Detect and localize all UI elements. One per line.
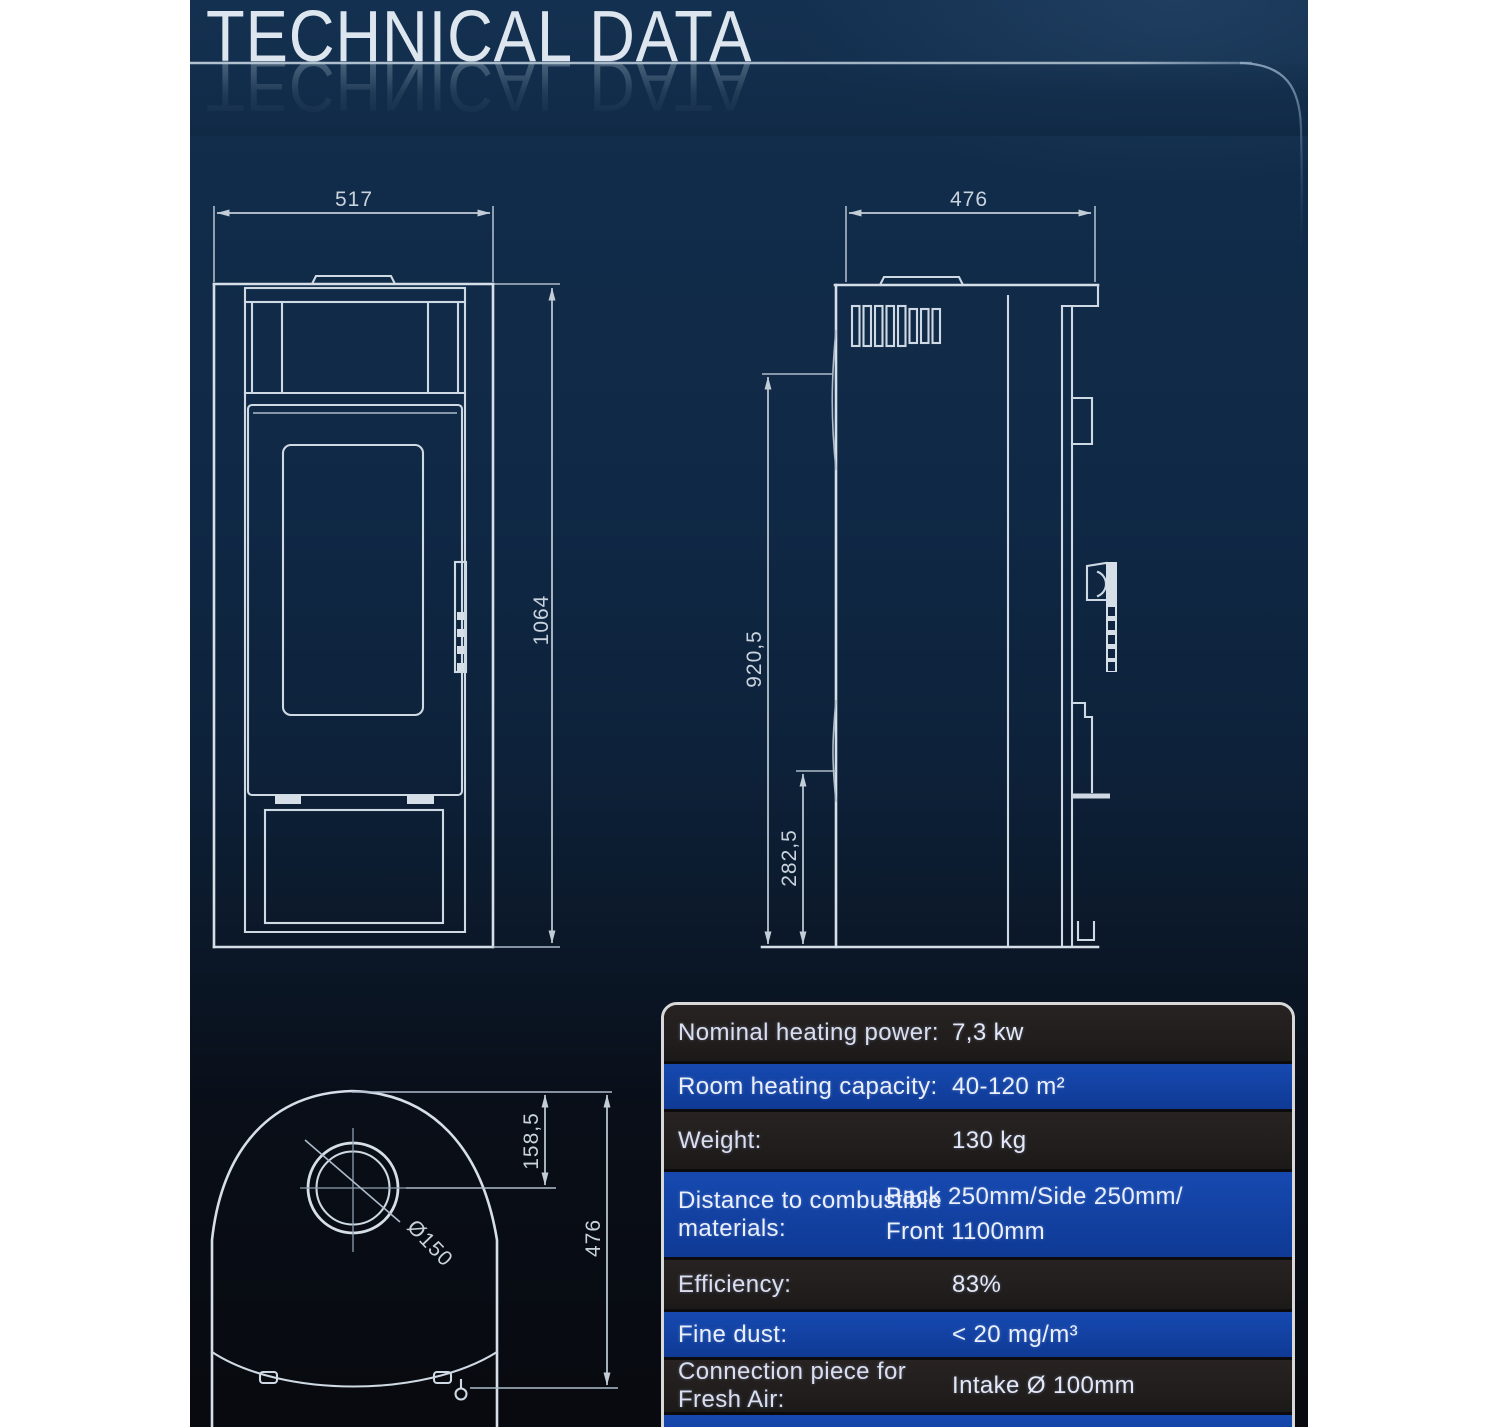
spec-value: 83% xyxy=(952,1271,1292,1299)
header-underline-swoosh xyxy=(190,63,1302,246)
spec-label: Room heating capacity: xyxy=(664,1073,952,1101)
top-view-drawing: Ø150 158,5 476 xyxy=(212,1091,618,1427)
spec-value: Intake Ø 100mm xyxy=(952,1372,1292,1400)
spec-label: Connection piece for Fresh Air: xyxy=(664,1358,952,1414)
table-row: Distance to combustible materials: Back … xyxy=(664,1169,1292,1257)
front-width-dim-label: 517 xyxy=(335,188,373,211)
spec-value: 40-120 m² xyxy=(952,1073,1292,1101)
spec-value: 130 kg xyxy=(952,1127,1292,1155)
datasheet: TECHNICAL DATA TECHNICAL DATA xyxy=(190,0,1308,1427)
top-depth-dim-label: 476 xyxy=(582,1219,605,1257)
table-row: Room heating capacity: 40-120 m² xyxy=(664,1061,1292,1109)
side-depth-dim-label: 476 xyxy=(950,188,988,211)
table-row: Nominal heating power: 7,3 kw xyxy=(664,1005,1292,1061)
flue-offset-dim-label: 158,5 xyxy=(520,1112,543,1170)
table-row xyxy=(664,1412,1292,1427)
front-height-dim-label: 1064 xyxy=(530,595,553,646)
front-view-drawing: 517 xyxy=(214,188,560,947)
table-row: Connection piece for Fresh Air: Intake Ø… xyxy=(664,1357,1292,1412)
table-row: Efficiency: 83% xyxy=(664,1257,1292,1309)
page: TECHNICAL DATA TECHNICAL DATA xyxy=(0,0,1500,1427)
side-height-lower-dim-label: 282,5 xyxy=(778,829,801,887)
spec-label: Weight: xyxy=(664,1127,952,1155)
flue-diameter-label: Ø150 xyxy=(402,1215,457,1271)
spec-label: Fine dust: xyxy=(664,1321,952,1349)
side-height-total-dim-label: 920,5 xyxy=(743,630,766,688)
spec-value: 7,3 kw xyxy=(952,1019,1292,1047)
vent-grille xyxy=(852,306,940,346)
spec-table: Nominal heating power: 7,3 kw Room heati… xyxy=(661,1002,1295,1427)
side-view-drawing: 476 xyxy=(743,188,1117,947)
spec-label: Nominal heating power: xyxy=(664,1019,952,1047)
spec-value: Back 250mm/Side 250mm/ Front 1100mm xyxy=(886,1180,1292,1250)
door-handle-side xyxy=(1087,562,1117,672)
spec-label: Efficiency: xyxy=(664,1271,952,1299)
table-row: Fine dust: < 20 mg/m³ xyxy=(664,1309,1292,1357)
spec-value: < 20 mg/m³ xyxy=(952,1321,1292,1349)
table-row: Weight: 130 kg xyxy=(664,1109,1292,1169)
